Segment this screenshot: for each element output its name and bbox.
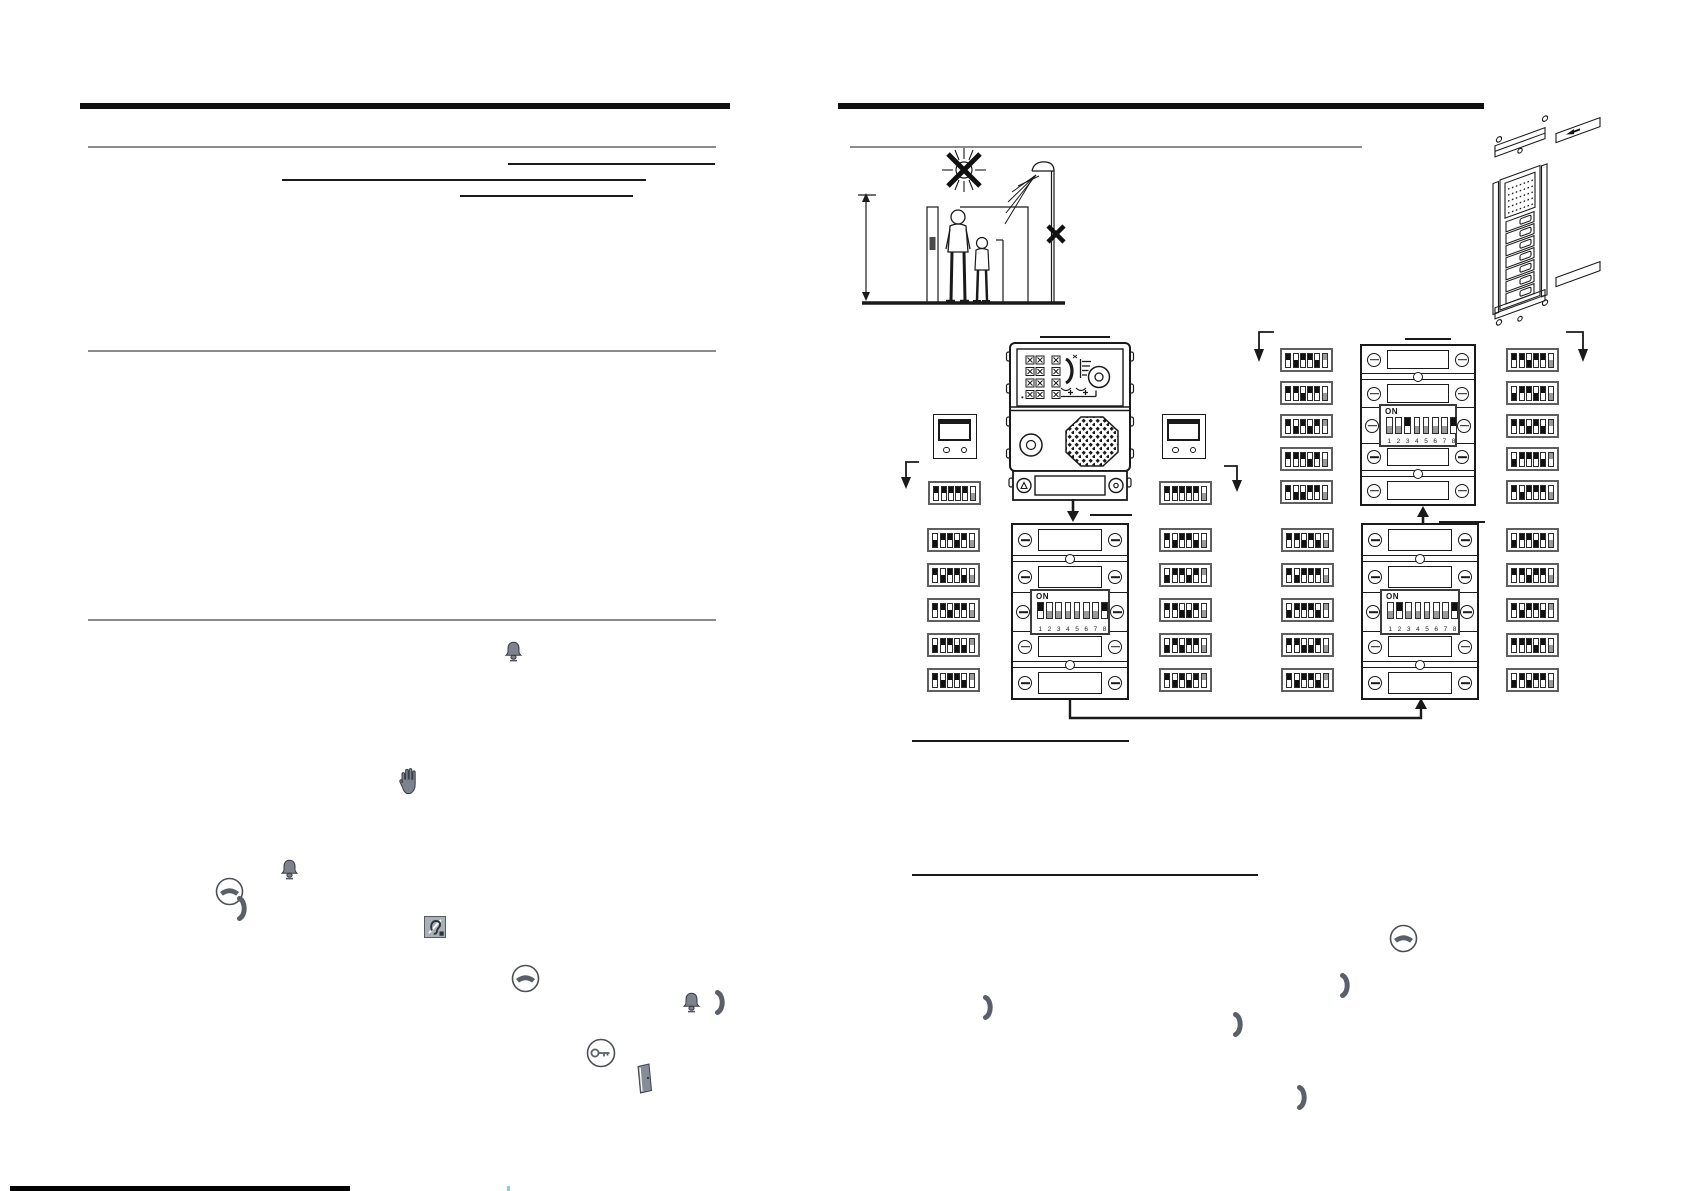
dip-switch: [940, 673, 946, 688]
dip-switch: [1307, 353, 1313, 368]
dip-switch: [1548, 386, 1554, 401]
dip-switch: [1511, 485, 1517, 500]
name-plate: [1388, 529, 1452, 551]
dip-switch: [1294, 673, 1300, 688]
dip-switch: [1323, 638, 1329, 653]
dip-switch: [1533, 603, 1539, 618]
dip-switch: [969, 533, 975, 548]
dip-switch: [1519, 485, 1525, 500]
entrance-panel-mark: [930, 237, 936, 250]
dip-switch: [1286, 673, 1292, 688]
screw-icon: [1455, 484, 1469, 498]
dip-switch: [1164, 568, 1170, 583]
left-heading-underline-2: [282, 179, 646, 181]
dip-switch: [1164, 603, 1170, 618]
dip-switch: [1193, 486, 1199, 501]
dip-switch: [1307, 485, 1313, 500]
dip-switch: [1519, 452, 1525, 467]
dip-switch: [1301, 568, 1307, 583]
dip-switch: [932, 638, 938, 653]
dip-switch: [947, 638, 953, 653]
dip-switch: [1172, 486, 1178, 501]
flow-arrow-down: [1250, 328, 1278, 368]
name-plate: [1387, 481, 1449, 500]
dip-switch: [1519, 673, 1525, 688]
dip-switch-block: [1506, 563, 1559, 587]
dip-switch: [1323, 673, 1329, 688]
left-heading-underline-1: [508, 163, 715, 165]
screw-icon: [1455, 353, 1469, 367]
dip-switch: [1450, 417, 1457, 434]
dip-switch: [1441, 417, 1448, 434]
frame-button-rows: [1506, 212, 1534, 304]
screw-icon: [1455, 387, 1469, 401]
dip-switch: [940, 568, 946, 583]
dip-switch: [1294, 638, 1300, 653]
dip-switch-block: [928, 481, 981, 505]
dip-switch-block: [1506, 528, 1559, 552]
screw-icon: [1366, 605, 1380, 619]
dip-switch: [1315, 673, 1321, 688]
dip-switch-block: [1159, 481, 1212, 505]
dip-switch: [1322, 452, 1328, 467]
screw-icon: [1455, 450, 1469, 464]
dip-switch: [1186, 486, 1192, 501]
dip-switch: [1526, 452, 1532, 467]
dip-switch: [1164, 673, 1170, 688]
dip-switch: [1101, 602, 1108, 619]
dip-switch: [1533, 533, 1539, 548]
display-screen: [938, 419, 971, 441]
dip-switch: [933, 486, 939, 501]
button-module: [1362, 380, 1474, 407]
dip-switch: [954, 533, 960, 548]
button-module: [1013, 525, 1127, 555]
module-junction: [1363, 661, 1477, 668]
dip-switch: [1164, 638, 1170, 653]
dip-switch: [941, 486, 947, 501]
dip-switch: [1286, 533, 1292, 548]
screw-icon: [1460, 605, 1474, 619]
screw-icon: [1458, 533, 1472, 547]
dip-switch: [1424, 602, 1431, 619]
name-plate: [1038, 566, 1102, 588]
dip-switch: [1285, 353, 1291, 368]
button-module: [1362, 346, 1474, 373]
dip-switch: [1548, 419, 1554, 434]
dip-switch: [1533, 673, 1539, 688]
dip-switch: [1314, 485, 1320, 500]
dip-switch: [1526, 568, 1532, 583]
dip-switch: [1548, 638, 1554, 653]
dip-switch: [932, 533, 938, 548]
right-text-underline: [912, 874, 1258, 876]
dip-switch-block: [1506, 598, 1559, 622]
dip-switch: [1533, 386, 1539, 401]
dip-switch: [969, 603, 975, 618]
dip-switch: [947, 533, 953, 548]
screw-icon: [1016, 605, 1030, 619]
handset-icon: [1339, 973, 1351, 1003]
dip-switch: [1533, 485, 1539, 500]
dip-switch: [954, 638, 960, 653]
dip-switch: [1442, 602, 1449, 619]
screw-icon: [1108, 570, 1122, 584]
group-label-line: [1090, 514, 1132, 516]
dip-switch: [1526, 673, 1532, 688]
button-panel: ON12345678: [1011, 523, 1129, 700]
dip-switch: [1315, 533, 1321, 548]
dip-switch-block: [1506, 414, 1559, 438]
dip-switch: [1307, 452, 1313, 467]
left-section-rule-1: [88, 146, 716, 148]
dip-switch: [1300, 353, 1306, 368]
child-figure-head: [977, 238, 988, 249]
flow-arrow-down: [1562, 328, 1594, 368]
dip-switch: [1186, 638, 1192, 653]
module-junction: [1362, 373, 1474, 380]
dip-switch: [1511, 452, 1517, 467]
dip-switch: [1186, 533, 1192, 548]
dip-switch: [1519, 386, 1525, 401]
screw-icon: [1368, 676, 1382, 690]
dip-switch: [1300, 452, 1306, 467]
station-to-panel-arrow: [1062, 499, 1084, 523]
dip-switch: [1404, 417, 1411, 434]
dip-switch: [1179, 486, 1185, 501]
dip-switch-block: [1281, 633, 1334, 657]
dip-switch: [1533, 419, 1539, 434]
dip-switch-numbers: 12345678: [1037, 626, 1108, 633]
dip-switch: [1451, 602, 1458, 619]
dip-switch: [1186, 673, 1192, 688]
dip-switch: [1433, 602, 1440, 619]
dip-switch-block: [1281, 668, 1334, 692]
dip-module: ON12345678: [1362, 407, 1474, 443]
button-module: [1013, 668, 1127, 698]
dip-switch: [1308, 673, 1314, 688]
dip-switch-block: [1506, 447, 1559, 471]
name-plate: [1388, 636, 1452, 657]
dip-switch: [1307, 419, 1313, 434]
dip-switch: [1519, 638, 1525, 653]
dip-switch: [954, 673, 960, 688]
module-junction: [1362, 470, 1474, 477]
button-module: [1363, 668, 1477, 698]
dip-switch: [947, 673, 953, 688]
dip-switch: [1540, 485, 1546, 500]
manual-page: const data = JSON.parse(document.getElem…: [0, 0, 1685, 1191]
bottom-group-underline: [912, 740, 1129, 742]
dip-switch-block: [927, 598, 980, 622]
dip-switch: [1526, 533, 1532, 548]
button-module: [1362, 477, 1474, 504]
dip-switch: [932, 673, 938, 688]
dip-switch: [948, 486, 954, 501]
dip-switch: [1172, 568, 1178, 583]
insert-arrow-icon: [1566, 127, 1580, 137]
dip-switch: [1386, 417, 1393, 434]
button-module: [1363, 562, 1477, 592]
screw-icon: [1457, 419, 1471, 433]
screw-icon: [1108, 640, 1122, 654]
screw-icon: [1368, 570, 1382, 584]
dip-switch: [1526, 638, 1532, 653]
dip-switch: [1307, 386, 1313, 401]
screw-icon: [1110, 605, 1124, 619]
dip-switch: [1293, 386, 1299, 401]
phone-hangup-circle-icon: [1389, 924, 1418, 958]
button-panel: ON12345678: [1361, 523, 1479, 700]
dip-switch: [1186, 603, 1192, 618]
dip-switch: [1285, 452, 1291, 467]
dip-switch: [1396, 602, 1403, 619]
dip-switch: [1526, 353, 1532, 368]
dip-switch: [1172, 533, 1178, 548]
dip-switch: [1285, 386, 1291, 401]
handset-icon: [1232, 1012, 1244, 1042]
button-module: [1013, 631, 1127, 661]
dip-switch: [1314, 353, 1320, 368]
display-screen: [1167, 419, 1200, 441]
handset-icon: [982, 995, 994, 1025]
dip-switch: [1548, 353, 1554, 368]
dip-switch: [1293, 419, 1299, 434]
dip-switch: [954, 568, 960, 583]
name-plate: [1038, 672, 1102, 694]
dip-switch: [940, 638, 946, 653]
dip-switch-block: [1506, 633, 1559, 657]
dip-switch: [1193, 673, 1199, 688]
dip-switch: [1308, 638, 1314, 653]
dip-switch-numbers: 12345678: [1387, 626, 1458, 633]
name-plate: [1387, 448, 1449, 466]
dip-switch: [1526, 386, 1532, 401]
dip-switch: [1540, 452, 1546, 467]
dip-switch: [1286, 568, 1292, 583]
screw-icon: [1367, 387, 1381, 401]
dip-switch: [1519, 419, 1525, 434]
handset-icon: [236, 896, 248, 926]
frame-side-strip-bottom: [1556, 262, 1600, 287]
dip-switch-block: [1506, 480, 1559, 504]
dip-switch: [1172, 673, 1178, 688]
door-icon: [635, 1063, 655, 1099]
dip-switch: [1526, 419, 1532, 434]
dip-switch: [940, 533, 946, 548]
dip-switch: [1201, 603, 1207, 618]
dip-switch: [1533, 353, 1539, 368]
dip-switch: [1548, 568, 1554, 583]
dip-switch: [1511, 386, 1517, 401]
name-plate: [1387, 384, 1449, 403]
screw-icon: [1367, 450, 1381, 464]
screw-icon: [1108, 676, 1122, 690]
dip-switch: [1294, 533, 1300, 548]
dip-switch-block: [927, 528, 980, 552]
dip-switch: [1164, 533, 1170, 548]
dip-switch: [1301, 638, 1307, 653]
dip-switch: [1286, 603, 1292, 618]
button-module: [1362, 443, 1474, 470]
handset-icon: [714, 990, 726, 1020]
dip-switch: [1533, 638, 1539, 653]
dip-switch: [1540, 603, 1546, 618]
dip-switch: [1065, 602, 1072, 619]
dip-switch: [1193, 638, 1199, 653]
dip-switch-block: [1281, 563, 1334, 587]
footer-registration-mark: [507, 1186, 510, 1191]
name-plate: [1038, 529, 1102, 551]
dip-switch: [1322, 419, 1328, 434]
bell-icon: [682, 992, 701, 1018]
screw-icon: [1458, 640, 1472, 654]
footer-black-bar: [10, 1186, 350, 1191]
dip-switch: [1540, 638, 1546, 653]
dip-switch: [1526, 485, 1532, 500]
dip-switch: [1285, 419, 1291, 434]
dip-switch-block: [1159, 633, 1212, 657]
dip-switch: [1308, 568, 1314, 583]
dip-switch: [1540, 386, 1546, 401]
bell-icon: [504, 641, 523, 667]
screw-icon: [1368, 640, 1382, 654]
dip-switch: [1179, 568, 1185, 583]
dip-switch: [1540, 673, 1546, 688]
dip-switch: [1179, 533, 1185, 548]
dip-switch: [969, 568, 975, 583]
screw-icon: [1496, 136, 1501, 143]
dip-switch: [1193, 533, 1199, 548]
screw-icon: [1018, 676, 1032, 690]
dip-switch-block: [1281, 598, 1334, 622]
dip-switch: [969, 673, 975, 688]
dip-switch-block: [1159, 668, 1212, 692]
dip-switch: [1293, 485, 1299, 500]
dip-switch: [1511, 568, 1517, 583]
dip-switch: [970, 486, 976, 501]
dip-switch: [962, 486, 968, 501]
dip-switch-block: [1280, 447, 1333, 471]
dip-switch: [1423, 417, 1430, 434]
dip-switch: [1172, 638, 1178, 653]
screw-icon: [1367, 353, 1381, 367]
button-panel: ON12345678: [1360, 344, 1476, 506]
dip-switch: [1432, 417, 1439, 434]
left-header-rule: [80, 103, 730, 109]
dip-switch-box: ON12345678: [1379, 404, 1457, 447]
dip-switch: [1511, 353, 1517, 368]
screw-icon: [1018, 640, 1032, 654]
dip-switch: [1301, 673, 1307, 688]
dip-switch-block: [1280, 480, 1333, 504]
dip-switch: [1511, 673, 1517, 688]
dip-switch: [1540, 568, 1546, 583]
dip-switch: [1540, 533, 1546, 548]
dip-switch-block: [1280, 414, 1333, 438]
dip-switch: [1046, 602, 1053, 619]
mounting-height-illustration: [850, 140, 1070, 310]
dip-switch: [1519, 533, 1525, 548]
dip-switch: [1519, 353, 1525, 368]
dip-switch: [932, 603, 938, 618]
adult-figure-head: [951, 210, 965, 224]
lamp-icon: [1005, 162, 1054, 303]
dip-switch: [1548, 533, 1554, 548]
dip-switch: [1300, 386, 1306, 401]
dip-switch: [1186, 568, 1192, 583]
dip-switch: [1395, 417, 1402, 434]
dip-switch: [954, 603, 960, 618]
dip-switch-block: [927, 668, 980, 692]
dip-switch: [1548, 485, 1554, 500]
dip-switch: [1322, 353, 1328, 368]
phone-hangup-circle-icon: [511, 964, 540, 998]
dip-switch: [1323, 568, 1329, 583]
dip-switch: [1519, 603, 1525, 618]
flow-arrow-down: [1220, 462, 1246, 498]
dip-switch: [1286, 638, 1292, 653]
dip-switch: [1519, 568, 1525, 583]
left-section-rule-2: [88, 350, 716, 352]
module-junction: [1363, 555, 1477, 562]
name-plate: [1388, 672, 1452, 694]
dip-switch: [961, 568, 967, 583]
dip-switch-block: [1159, 563, 1212, 587]
right-header-rule: [838, 103, 1484, 109]
handset-icon: [1296, 1085, 1308, 1115]
dip-switch: [1323, 533, 1329, 548]
dip-switch: [1540, 419, 1546, 434]
dip-switch: [1201, 568, 1207, 583]
dip-switch: [1301, 603, 1307, 618]
dip-switch: [1315, 603, 1321, 618]
dip-switch: [1193, 603, 1199, 618]
dip-switch: [947, 568, 953, 583]
dip-switch: [1533, 452, 1539, 467]
key-circle-icon: [586, 1038, 616, 1073]
dip-switch-block: [1280, 381, 1333, 405]
button-module: [1363, 525, 1477, 555]
dip-switch: [961, 533, 967, 548]
dip-switch: [1314, 419, 1320, 434]
dip-on-label: ON: [1385, 407, 1398, 416]
left-section-rule-3: [88, 619, 716, 621]
dip-switch: [1074, 602, 1081, 619]
dip-switch: [1415, 602, 1422, 619]
dip-switch: [1037, 602, 1044, 619]
dip-switch-block: [1506, 348, 1559, 372]
dip-switch-block: [1280, 348, 1333, 372]
dip-switch: [1083, 602, 1090, 619]
dip-switch: [1201, 533, 1207, 548]
group-label-line: [1405, 338, 1451, 340]
dip-switch: [961, 603, 967, 618]
name-plate: [1387, 350, 1449, 369]
screw-icon: [1542, 299, 1547, 306]
dip-on-label: ON: [1386, 592, 1399, 601]
screw-icon: [1458, 570, 1472, 584]
dip-switch: [1548, 603, 1554, 618]
name-plate: [1038, 636, 1102, 657]
dip-switch: [1322, 485, 1328, 500]
dip-switch-block: [1281, 528, 1334, 552]
dip-switch: [1414, 417, 1421, 434]
module-junction: [1013, 555, 1127, 562]
dip-switch: [1322, 386, 1328, 401]
dip-switch: [1526, 603, 1532, 618]
button-module: [1013, 562, 1127, 592]
